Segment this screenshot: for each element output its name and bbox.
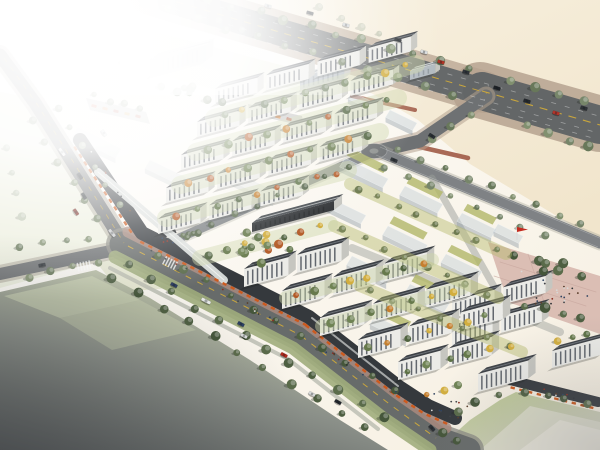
- rendering-canvas: [0, 0, 600, 450]
- aerial-render: [0, 0, 600, 450]
- atmosphere-haze-layer: [0, 0, 600, 450]
